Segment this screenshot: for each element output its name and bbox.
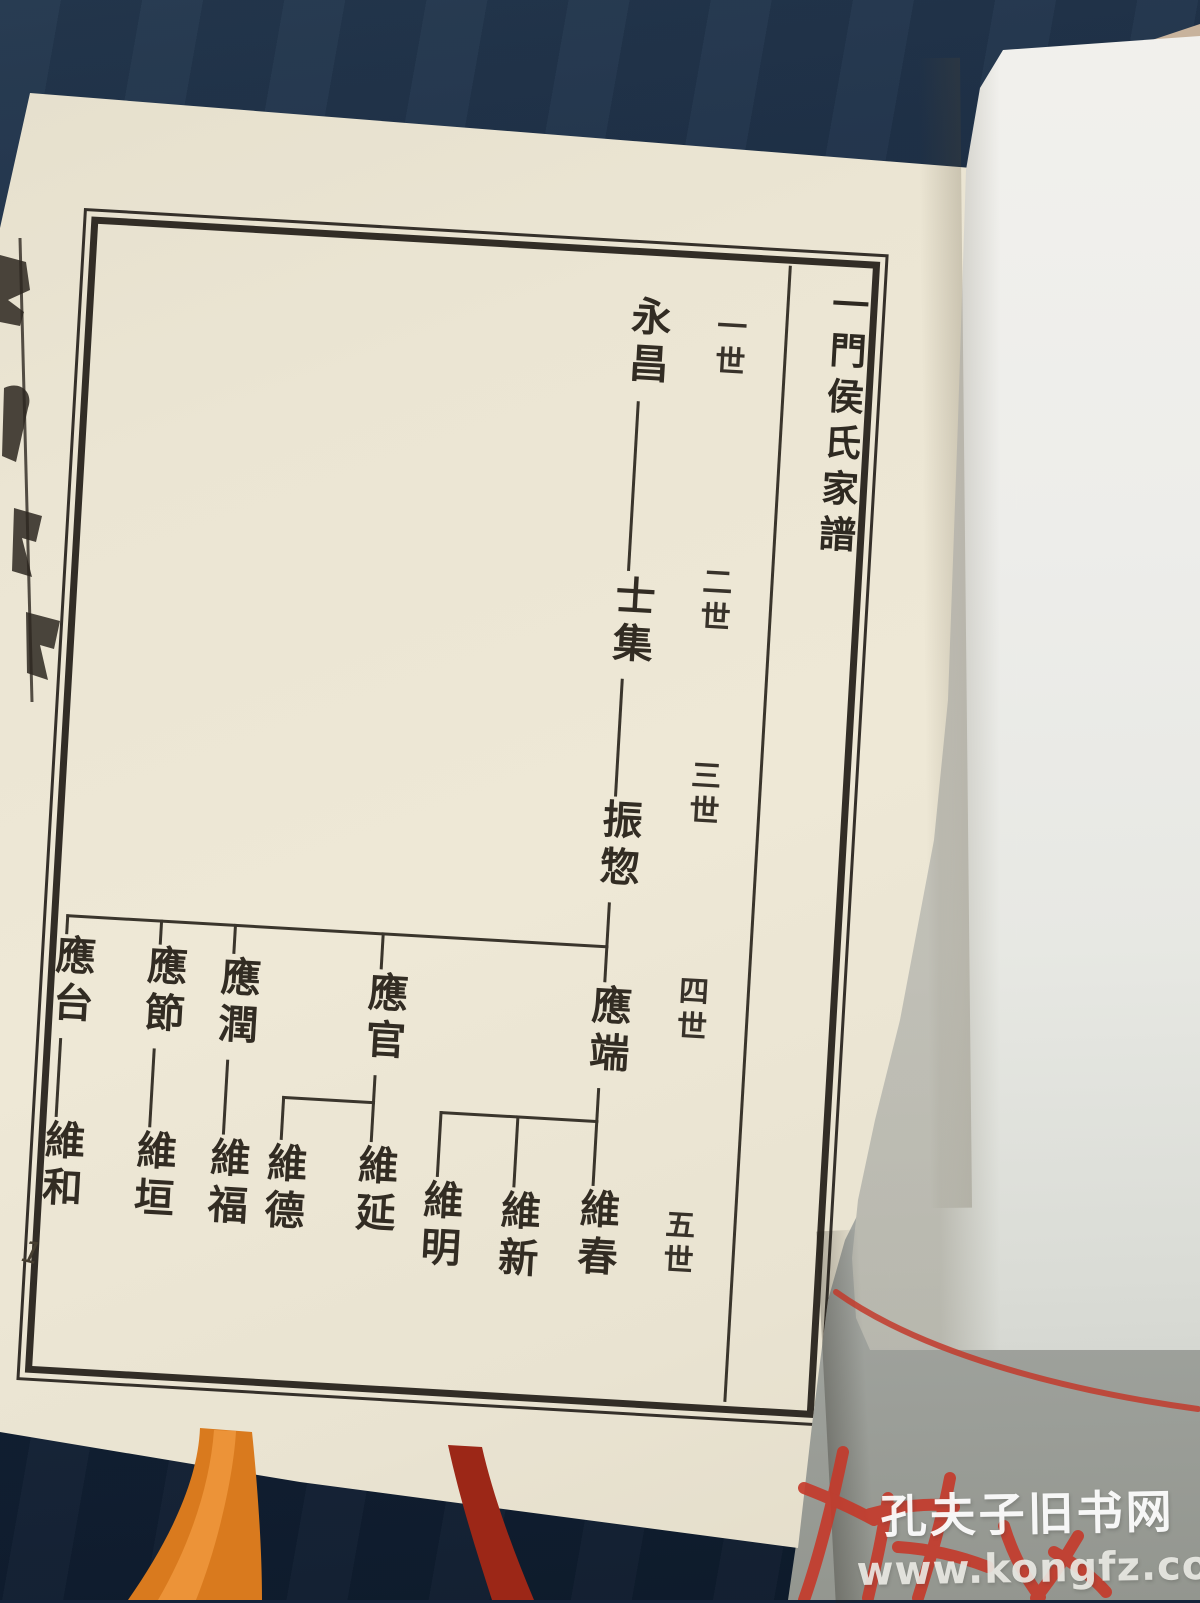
watermark-site-url: www.kongfz.com: [856, 1543, 1200, 1595]
page-edge-shadow: [902, 58, 972, 1209]
generation-label-3: 三世: [674, 758, 718, 830]
name-gen5-ming: 維明: [407, 1178, 460, 1275]
generation-label-4: 四世: [662, 974, 706, 1046]
watermark: 孔夫子旧书网 www.kongfz.com: [855, 1475, 1200, 1595]
name-gen4-guan: 應官: [352, 970, 405, 1067]
name-gen2: 士集: [599, 574, 652, 671]
name-gen3: 振惣: [587, 797, 640, 894]
name-gen4-duan: 應端: [576, 983, 629, 1080]
name-gen5-de: 維德: [251, 1140, 304, 1237]
name-gen4-tai: 應台: [40, 933, 93, 1030]
name-gen5-he: 維和: [29, 1118, 82, 1215]
name-gen5-xin: 維新: [485, 1188, 538, 1285]
name-gen5-chun: 維春: [564, 1187, 617, 1284]
name-gen4-jie: 應節: [131, 943, 184, 1040]
generation-label-5: 五世: [648, 1207, 692, 1279]
name-gen5-yuan: 維垣: [121, 1128, 174, 1225]
name-gen4-run: 應潤: [205, 955, 258, 1052]
generation-label-1: 一世: [700, 309, 744, 381]
watermark-site-name: 孔夫子旧书网: [855, 1475, 1200, 1547]
generation-label-2: 二世: [685, 564, 729, 636]
name-gen1: 永昌: [616, 294, 669, 391]
chart-frame: 一門侯氏家譜 一世 二世 三世 四世 五世 永昌 士集 振惣 應端 應官 應潤 …: [16, 208, 888, 1426]
name-gen5-fu: 維福: [194, 1135, 247, 1232]
name-gen5-yan: 維延: [342, 1143, 395, 1240]
